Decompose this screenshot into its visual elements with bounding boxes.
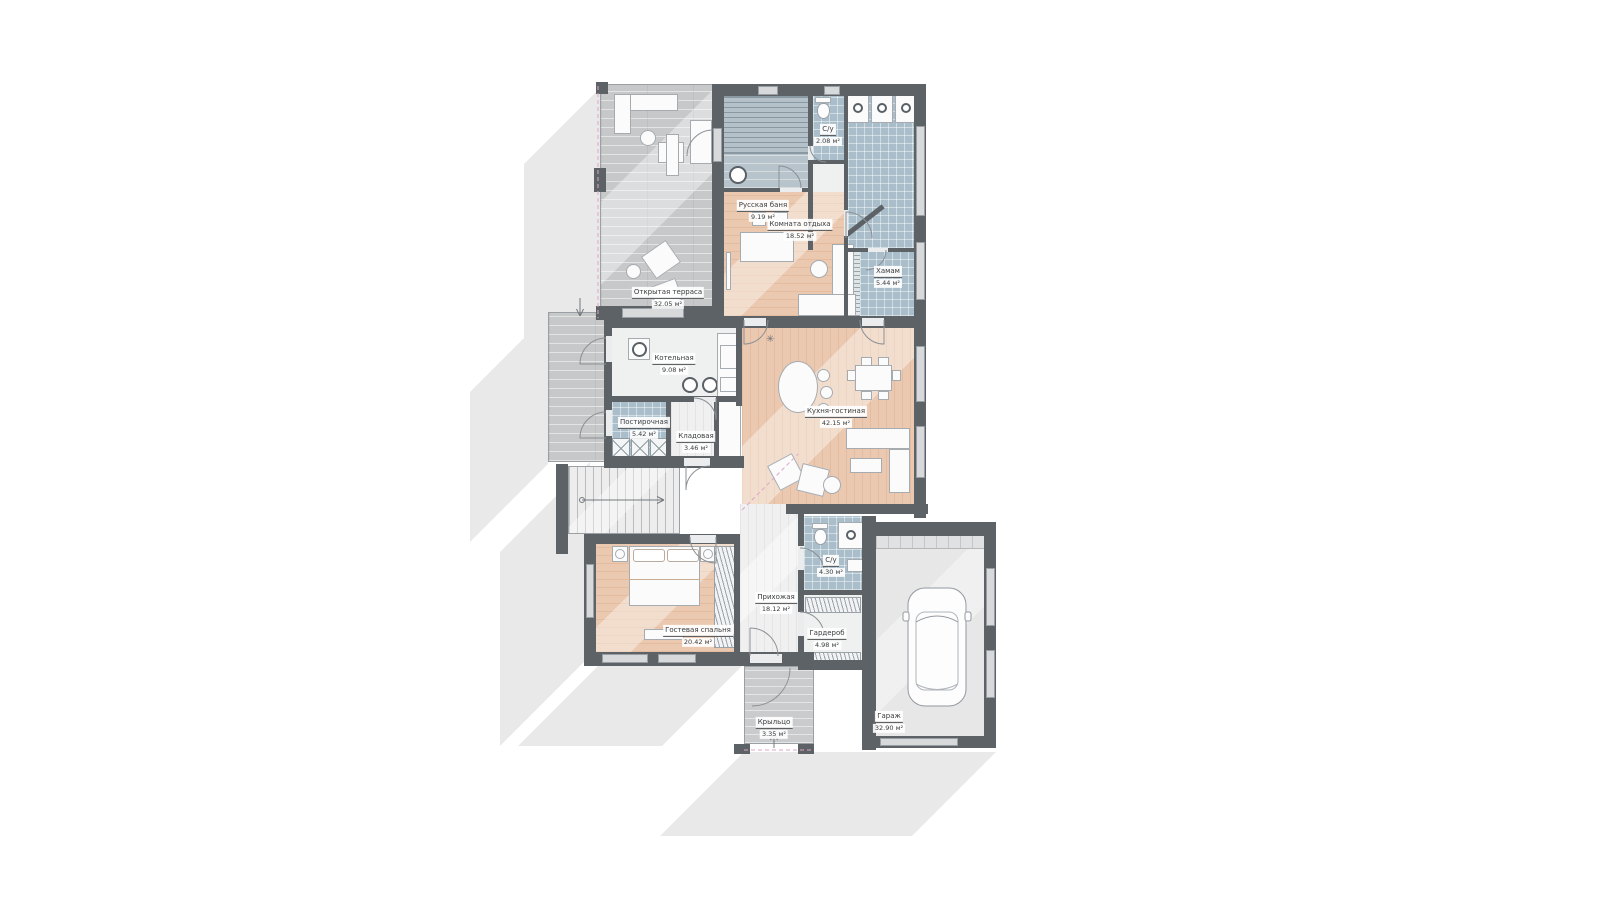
wall-segment — [786, 504, 928, 514]
pouf — [823, 476, 841, 494]
window — [880, 738, 958, 746]
door-opening — [780, 188, 802, 192]
window — [916, 346, 925, 402]
window — [658, 654, 696, 663]
room-label-garage: Гараж32.90 м² — [873, 711, 905, 733]
door-opening — [690, 535, 716, 543]
window — [916, 426, 925, 478]
door-opening — [750, 654, 782, 663]
lamp — [703, 549, 713, 559]
room-area: 18.52 м² — [784, 231, 816, 241]
shower-drain — [877, 103, 887, 113]
wall-segment — [844, 252, 848, 322]
window — [824, 86, 840, 95]
chair — [861, 357, 872, 366]
lounge-chair — [641, 240, 681, 279]
wall-segment — [712, 84, 926, 96]
pillow — [667, 549, 699, 562]
floor-plan: Открытая терраса32.05 м²Русская баня9.19… — [0, 0, 1600, 900]
room-name: Крыльцо — [756, 717, 793, 729]
door-opening — [798, 612, 804, 636]
wall-segment — [734, 744, 750, 754]
room-area: 5.44 м² — [874, 278, 902, 288]
room-name: Кладовая — [676, 431, 715, 443]
wall-segment — [604, 456, 744, 468]
sauna-stove — [729, 166, 747, 184]
room-name: Открытая терраса — [632, 287, 704, 299]
wall-segment — [984, 522, 996, 748]
planter — [666, 134, 679, 176]
room-name: Кухня-гостиная — [805, 406, 867, 418]
room-name: Прихожая — [755, 592, 797, 604]
room-name: С/у — [820, 124, 835, 136]
wall-segment — [584, 534, 740, 544]
room-name: Гараж — [875, 711, 903, 723]
room-area: 3.35 м² — [760, 729, 788, 739]
wall-segment — [800, 590, 864, 595]
window — [713, 128, 722, 162]
room-name: С/у — [823, 555, 838, 567]
room-label-wc: С/у4.30 м² — [817, 555, 845, 577]
toilet — [817, 103, 830, 119]
room-area: 4.98 м² — [813, 640, 841, 650]
room-label-porch: Крыльцо3.35 м² — [756, 717, 793, 739]
room-area: 32.05 м² — [652, 299, 684, 309]
wall-segment — [596, 82, 608, 94]
boiler-ring — [632, 342, 647, 357]
chair — [878, 357, 889, 366]
equipment — [702, 377, 718, 393]
chair — [892, 370, 901, 381]
room-label-kitchen-living: Кухня-гостиная42.15 м² — [805, 406, 867, 428]
sofa — [614, 94, 631, 134]
armchair — [690, 120, 712, 164]
blanket-edge — [629, 579, 700, 580]
window — [986, 568, 995, 626]
window — [916, 126, 925, 216]
room-area: 20.42 м² — [682, 637, 714, 647]
pouf — [810, 260, 828, 278]
room-area: 42.15 м² — [820, 418, 852, 428]
chair — [817, 369, 830, 382]
room-label-wc-banya: С/у2.08 м² — [814, 124, 842, 146]
wall-segment — [798, 744, 814, 754]
door-opening — [684, 458, 710, 466]
room-area: 4.30 м² — [817, 567, 845, 577]
door-opening — [606, 410, 612, 436]
wall-segment — [604, 396, 740, 402]
chair — [847, 370, 856, 381]
shower-drain — [846, 530, 856, 540]
furniture-layer — [0, 0, 1600, 900]
sofa — [846, 428, 910, 449]
tv-panel — [726, 252, 731, 290]
door-opening — [798, 546, 804, 570]
room-area: 2.08 м² — [814, 136, 842, 146]
door-opening — [868, 248, 888, 252]
window — [586, 564, 594, 618]
garage-gate-track — [876, 536, 984, 549]
room-area: 32.90 м² — [873, 723, 905, 733]
chair — [861, 391, 872, 400]
chair — [820, 386, 833, 399]
shower-drain — [901, 103, 911, 113]
window — [758, 86, 778, 95]
door-opening — [744, 318, 766, 326]
washbasin — [847, 559, 863, 572]
room-name: Гостевая спальня — [663, 625, 733, 637]
room-label-hammam: Хамам5.44 м² — [874, 266, 902, 288]
wall-segment — [798, 660, 864, 670]
room-label-open-terrace: Открытая терраса32.05 м² — [632, 287, 704, 309]
wall-segment — [798, 514, 804, 662]
room-area: 18.12 м² — [760, 604, 792, 614]
floor-plan-canvas: Открытая терраса32.05 м²Русская баня9.19… — [0, 0, 1600, 900]
room-label-wardrobe: Гардероб4.98 м² — [807, 628, 846, 650]
window — [602, 654, 648, 663]
door-opening — [862, 318, 884, 326]
wall-segment — [594, 168, 606, 192]
room-name: Гардероб — [807, 628, 846, 640]
equipment — [682, 377, 698, 393]
room-area: 5.42 м² — [630, 429, 658, 439]
closet — [805, 597, 861, 613]
window — [916, 242, 925, 300]
room-name: Комната отдыха — [767, 219, 832, 231]
door-opening — [606, 336, 612, 362]
room-area: 3.46 м² — [682, 443, 710, 453]
wall-segment — [734, 538, 740, 654]
toilet — [814, 529, 827, 545]
room-label-pantry: Кладовая3.46 м² — [676, 431, 715, 453]
room-name: Хамам — [874, 266, 902, 278]
chair — [878, 391, 889, 400]
window — [986, 650, 995, 698]
window — [622, 308, 684, 318]
wall-segment — [556, 464, 568, 554]
side-table — [626, 264, 641, 279]
room-label-guest-bedroom: Гостевая спальня20.42 м² — [663, 625, 733, 647]
wall-segment — [736, 322, 742, 406]
room-area: 9.08 м² — [660, 365, 688, 375]
door-opening — [844, 210, 848, 236]
room-label-hallway: Прихожая18.12 м² — [755, 592, 797, 614]
room-name: Русская баня — [737, 200, 789, 212]
table — [855, 365, 892, 391]
door-opening — [694, 397, 716, 402]
room-label-lounge-room: Комната отдыха18.52 м² — [767, 219, 832, 241]
coffee-table — [850, 458, 882, 473]
wall-segment — [862, 522, 996, 536]
pillow — [633, 549, 665, 562]
wall-segment — [808, 160, 848, 164]
lamp — [615, 549, 625, 559]
room-label-laundry: Постирочная5.42 м² — [618, 417, 670, 439]
room-name: Котельная — [652, 353, 695, 365]
wall-segment — [712, 84, 724, 328]
room-name: Постирочная — [618, 417, 670, 429]
sofa — [889, 449, 910, 493]
room-label-boiler-room: Котельная9.08 м² — [652, 353, 695, 375]
side-table — [640, 130, 656, 146]
shower-drain — [853, 103, 863, 113]
door-opening — [808, 146, 813, 160]
